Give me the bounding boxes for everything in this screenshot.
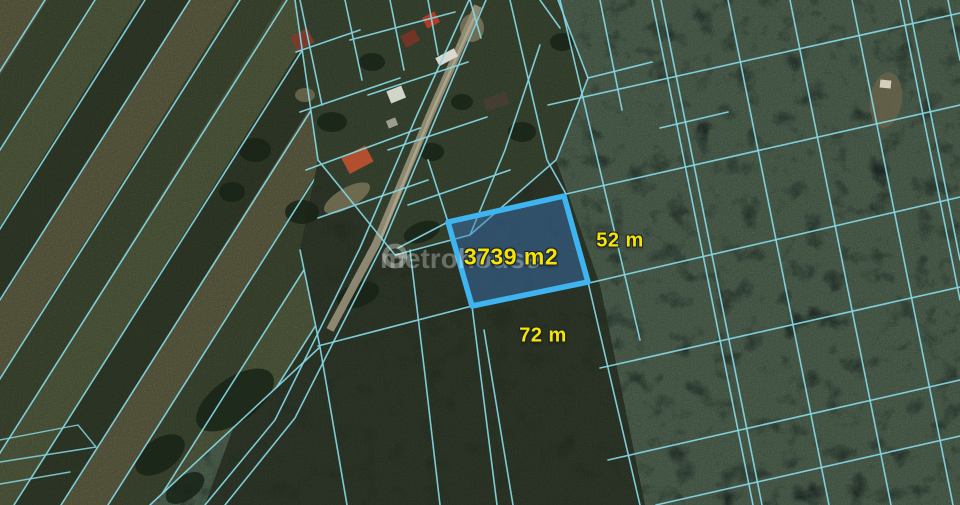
parcel-side-label-bottom: 72 m bbox=[519, 325, 567, 348]
aerial-map-canvas[interactable]: metrohouse 3739 m2 52 m 72 m bbox=[0, 0, 960, 505]
parcel-side-label-right: 52 m bbox=[596, 230, 644, 253]
parcel-area-label: 3739 m2 bbox=[464, 244, 558, 271]
